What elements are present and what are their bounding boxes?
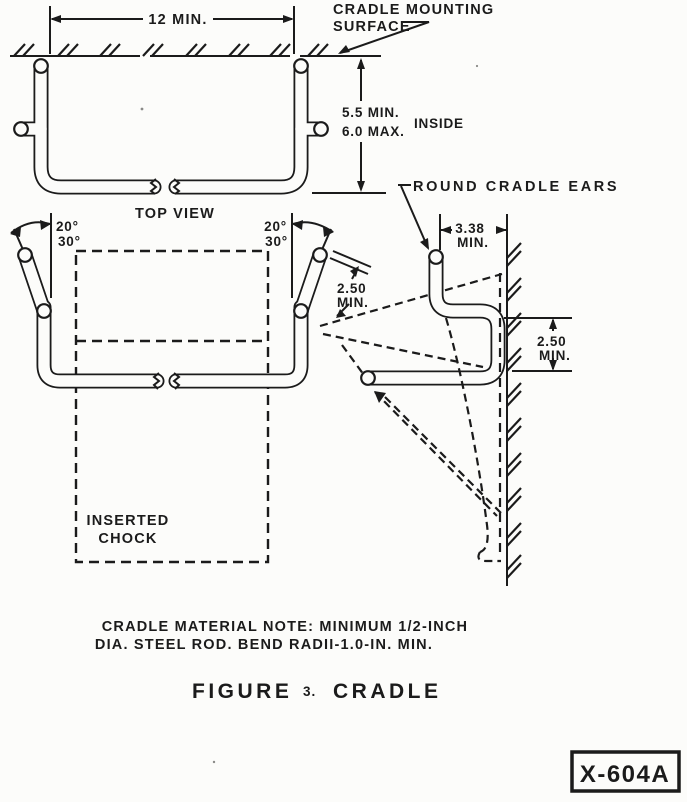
angle-label-right-20: 20° [264, 219, 287, 234]
figure-label: FIGURE [192, 680, 292, 703]
material-note-line1: CRADLE MATERIAL NOTE: MINIMUM 1/2-INCH [102, 619, 468, 635]
ear-length-dim-value: 2.50 [337, 281, 366, 296]
top-view-title: TOP VIEW [135, 206, 215, 222]
scanned-drawing-page: 12 MIN. CRADLE MOUNTING SURFACE 5.5 MIN.… [0, 0, 687, 802]
width-dim-label: 12 MIN. [148, 12, 207, 28]
angle-label-left-30: 30° [58, 234, 81, 249]
round-cradle-ears-label: ROUND CRADLE EARS [413, 179, 619, 195]
depth-dim-min-label: 5.5 MIN. [342, 105, 399, 120]
ear-length-dim-qualifier: MIN. [337, 295, 369, 310]
figure-number: 3. [303, 684, 316, 699]
depth-dim-max-label: 6.0 MAX. [342, 124, 405, 139]
side-depth-dim-qualifier: MIN. [539, 348, 571, 363]
angle-label-right-30: 30° [265, 234, 288, 249]
ear-offset-dim-qualifier: MIN. [457, 235, 489, 250]
inserted-chock-label-line1: INSERTED [87, 513, 170, 529]
mounting-label-line2: SURFACE [333, 19, 411, 35]
depth-dim-inside-label: INSIDE [414, 116, 464, 131]
inserted-chock-label-line2: CHOCK [98, 531, 157, 547]
material-note-line2: DIA. STEEL ROD. BEND RADII-1.0-IN. MIN. [95, 637, 433, 653]
mounting-label-line1: CRADLE MOUNTING [333, 2, 494, 18]
ear-offset-dim-value: 3.38 [455, 221, 484, 236]
doc-id-text: X-604A [580, 761, 670, 788]
cradle-figure-drawing: 12 MIN. CRADLE MOUNTING SURFACE 5.5 MIN.… [0, 0, 687, 802]
figure-title: CRADLE [333, 680, 442, 703]
side-depth-dim-value: 2.50 [537, 334, 566, 349]
angle-label-left-20: 20° [56, 219, 79, 234]
